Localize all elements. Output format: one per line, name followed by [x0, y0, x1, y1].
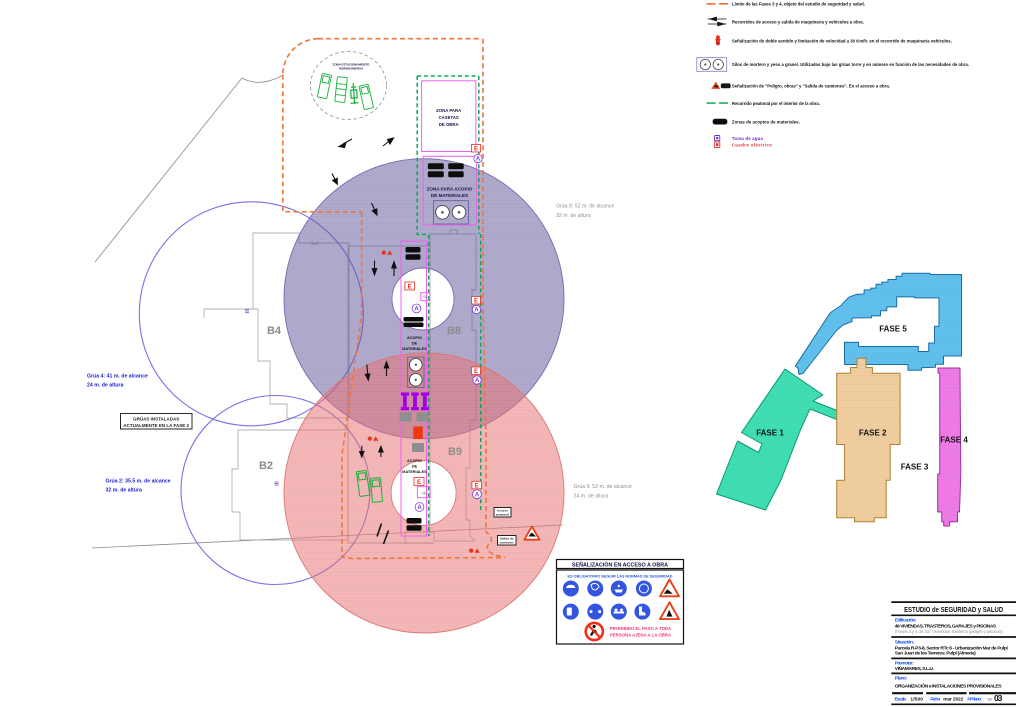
svg-text:Parcela R-P3-8, Sector RTc 6 -: Parcela R-P3-8, Sector RTc 6 - Urbanizac… [895, 645, 1009, 651]
svg-text:B8: B8 [447, 325, 461, 337]
svg-text:Situación:: Situación: [895, 639, 915, 645]
svg-text:PERSONA AJENA A LA OBRA: PERSONA AJENA A LA OBRA [610, 633, 671, 638]
svg-text:ESS: ESS [987, 697, 993, 702]
svg-text:Zonas de acopios de materiales: Zonas de acopios de materiales. [732, 119, 800, 124]
svg-text:GRÚAS INSTALADAS: GRÚAS INSTALADAS [133, 415, 179, 421]
svg-text:FASE 1: FASE 1 [756, 429, 784, 438]
svg-text:SEÑALIZACIÓN EN ACCESO A OBRA: SEÑALIZACIÓN EN ACCESO A OBRA [572, 560, 668, 568]
svg-text:Recorridos de acceso y salida: Recorridos de acceso y salida de maquina… [732, 19, 864, 24]
svg-text:E: E [417, 480, 421, 486]
svg-text:E: E [474, 369, 478, 375]
svg-text:E: E [474, 147, 478, 153]
svg-text:DE OBRA: DE OBRA [439, 122, 459, 127]
svg-text:A: A [476, 157, 481, 163]
svg-text:ACTUALMENTE EN LA FASE 2: ACTUALMENTE EN LA FASE 2 [123, 423, 189, 428]
svg-text:Plano:: Plano: [895, 676, 908, 682]
svg-text:DE: DE [412, 464, 418, 468]
svg-text:Límite de las Fases 3 y 4, obj: Límite de las Fases 3 y 4, objeto del es… [732, 2, 865, 7]
svg-text:ACOPIO: ACOPIO [407, 336, 422, 340]
svg-text:Toma de agua: Toma de agua [732, 136, 764, 141]
svg-text:Silos de mortero y yeso a gran: Silos de mortero y yeso a granel. Utiliz… [732, 62, 969, 67]
svg-text:A: A [417, 505, 422, 511]
svg-text:B2: B2 [259, 460, 273, 472]
svg-text:ACOPIO: ACOPIO [407, 459, 422, 463]
svg-text:(Fases 3 y 4 de 337 Viviendas,: (Fases 3 y 4 de 337 Viviendas, trasteros… [895, 629, 1003, 634]
svg-text:A: A [475, 378, 480, 384]
svg-text:VIÑAMARES, S.L.U.: VIÑAMARES, S.L.U. [895, 665, 935, 672]
svg-text:E: E [408, 285, 412, 291]
svg-text:Grúa 9: 52 m. de alcance: Grúa 9: 52 m. de alcance [574, 484, 632, 490]
svg-text:San Juan de los Terreros. Pulp: San Juan de los Terreros. Pulpí (Almería… [895, 651, 976, 657]
svg-text:A: A [474, 308, 479, 314]
svg-text:DE MATERIALES: DE MATERIALES [431, 193, 468, 198]
svg-text:PROHIBIDO EL PASO A TODA: PROHIBIDO EL PASO A TODA [610, 626, 671, 631]
svg-text:03: 03 [994, 693, 1003, 703]
svg-text:Cuadro eléctrico: Cuadro eléctrico [732, 142, 772, 147]
svg-text:E: E [475, 484, 479, 490]
svg-text:ESTUDIO de SEGURIDAD y SALUD: ESTUDIO de SEGURIDAD y SALUD [904, 605, 1004, 614]
svg-text:Grúa 4: 41 m. de alcance: Grúa 4: 41 m. de alcance [87, 374, 148, 380]
svg-text:E: E [474, 299, 478, 305]
svg-text:HORMIGONERAS: HORMIGONERAS [339, 66, 363, 70]
svg-text:FASE 5: FASE 5 [879, 325, 907, 334]
svg-text:FASE 3: FASE 3 [901, 463, 929, 472]
svg-text:DE: DE [412, 341, 418, 345]
svg-text:08: 08 [423, 295, 427, 299]
svg-text:32 m. de altura: 32 m. de altura [106, 488, 142, 494]
svg-text:Promotor:: Promotor: [895, 661, 914, 667]
svg-text:camiones: camiones [500, 541, 515, 545]
svg-text:B4: B4 [267, 325, 282, 337]
svg-text:Escala:: Escala: [895, 697, 907, 703]
svg-text:MATERIALES: MATERIALES [402, 347, 427, 351]
svg-text:1/500: 1/500 [910, 697, 923, 703]
svg-text:B9: B9 [448, 446, 462, 458]
svg-text:Señalización de "Peligro, obra: Señalización de "Peligro, obras" y "Sali… [732, 83, 890, 88]
svg-text:FASE 4: FASE 4 [940, 436, 968, 445]
svg-text:ZONA PARA: ZONA PARA [436, 108, 461, 113]
svg-text:08: 08 [421, 491, 426, 496]
svg-text:24 m. de altura: 24 m. de altura [87, 383, 123, 389]
svg-text:32 m. de altura: 32 m. de altura [556, 213, 591, 219]
svg-text:FASE 2: FASE 2 [859, 429, 887, 438]
svg-text:peatonal: peatonal [496, 513, 509, 517]
svg-text:A: A [475, 493, 480, 499]
svg-text:ES OBLIGATORIO SEGUIR LAS NORM: ES OBLIGATORIO SEGUIR LAS NORMAS DE SEGU… [568, 574, 673, 578]
svg-text:MATERIALES: MATERIALES [402, 470, 427, 474]
svg-text:Edificación:: Edificación: [895, 618, 917, 624]
svg-text:CASETAS: CASETAS [439, 115, 459, 120]
svg-text:Grúa 2: 35.5 m. de alcance: Grúa 2: 35.5 m. de alcance [106, 479, 171, 485]
svg-text:Fecha:: Fecha: [930, 697, 941, 703]
svg-text:Señalización de doble sentido: Señalización de doble sentido y limitaci… [732, 38, 952, 43]
svg-text:mar 2022: mar 2022 [943, 697, 963, 703]
svg-text:Recorrido peatonal por el inte: Recorrido peatonal por el interior de la… [732, 101, 820, 106]
svg-text:Grúa 8: 52 m. de alcance: Grúa 8: 52 m. de alcance [556, 204, 614, 210]
svg-text:A: A [414, 307, 419, 313]
svg-text:24 m. de altura: 24 m. de altura [574, 494, 609, 500]
svg-text:ZONA PARA ACOPIO: ZONA PARA ACOPIO [427, 187, 473, 192]
svg-text:Nº Plano:: Nº Plano: [967, 697, 982, 703]
